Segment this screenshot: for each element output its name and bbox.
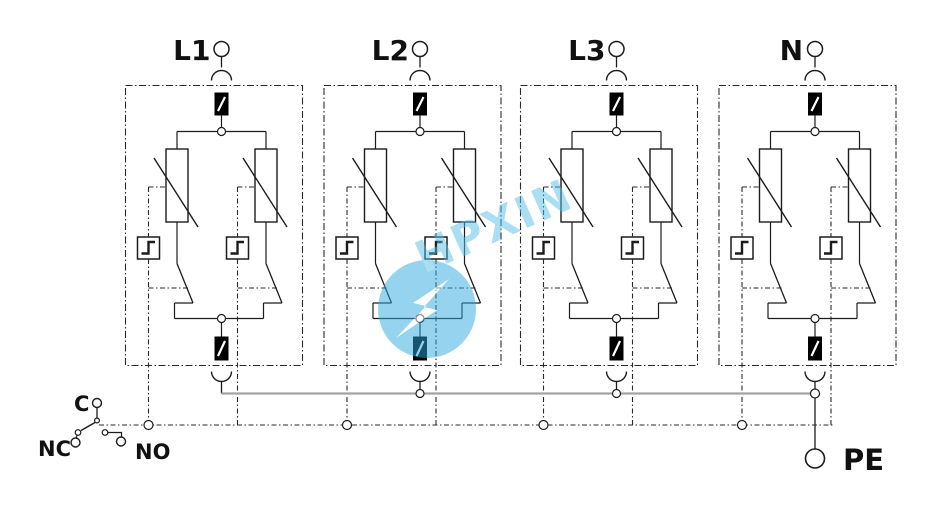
terminal-pe	[806, 449, 825, 468]
label-no: NO	[135, 440, 170, 464]
spd-module-l1	[126, 57, 303, 426]
label-l1: L1	[173, 34, 210, 67]
signal-node-l3	[539, 421, 548, 430]
pe-bus-node-n	[811, 389, 820, 398]
watermark: HPXIN	[378, 170, 580, 358]
label-c: C	[74, 392, 89, 416]
spd-module-l3	[521, 57, 698, 426]
schematic-canvas: L1 L2 L3 N PE C NC NO HPXIN	[0, 0, 943, 506]
label-l3: L3	[568, 34, 605, 67]
contact-lever	[81, 423, 95, 431]
label-n: N	[780, 34, 803, 67]
label-nc: NC	[38, 437, 71, 461]
spd-module-n	[719, 57, 896, 426]
terminal-n	[808, 42, 823, 57]
pe-bus-node-l2	[416, 390, 424, 398]
terminal-l1	[214, 42, 229, 57]
terminal-l3	[609, 42, 624, 57]
signal-node-l1	[144, 421, 153, 430]
label-pe: PE	[843, 443, 884, 477]
pe-bus-node-l3	[613, 390, 621, 398]
spd-circuit-diagram: L1 L2 L3 N PE C NC NO HPXIN	[0, 0, 943, 506]
signal-node-l2	[343, 421, 352, 430]
watermark-text: HPXIN	[408, 170, 581, 284]
terminal-l2	[413, 42, 428, 57]
signal-node-n	[738, 421, 747, 430]
label-l2: L2	[372, 34, 409, 67]
